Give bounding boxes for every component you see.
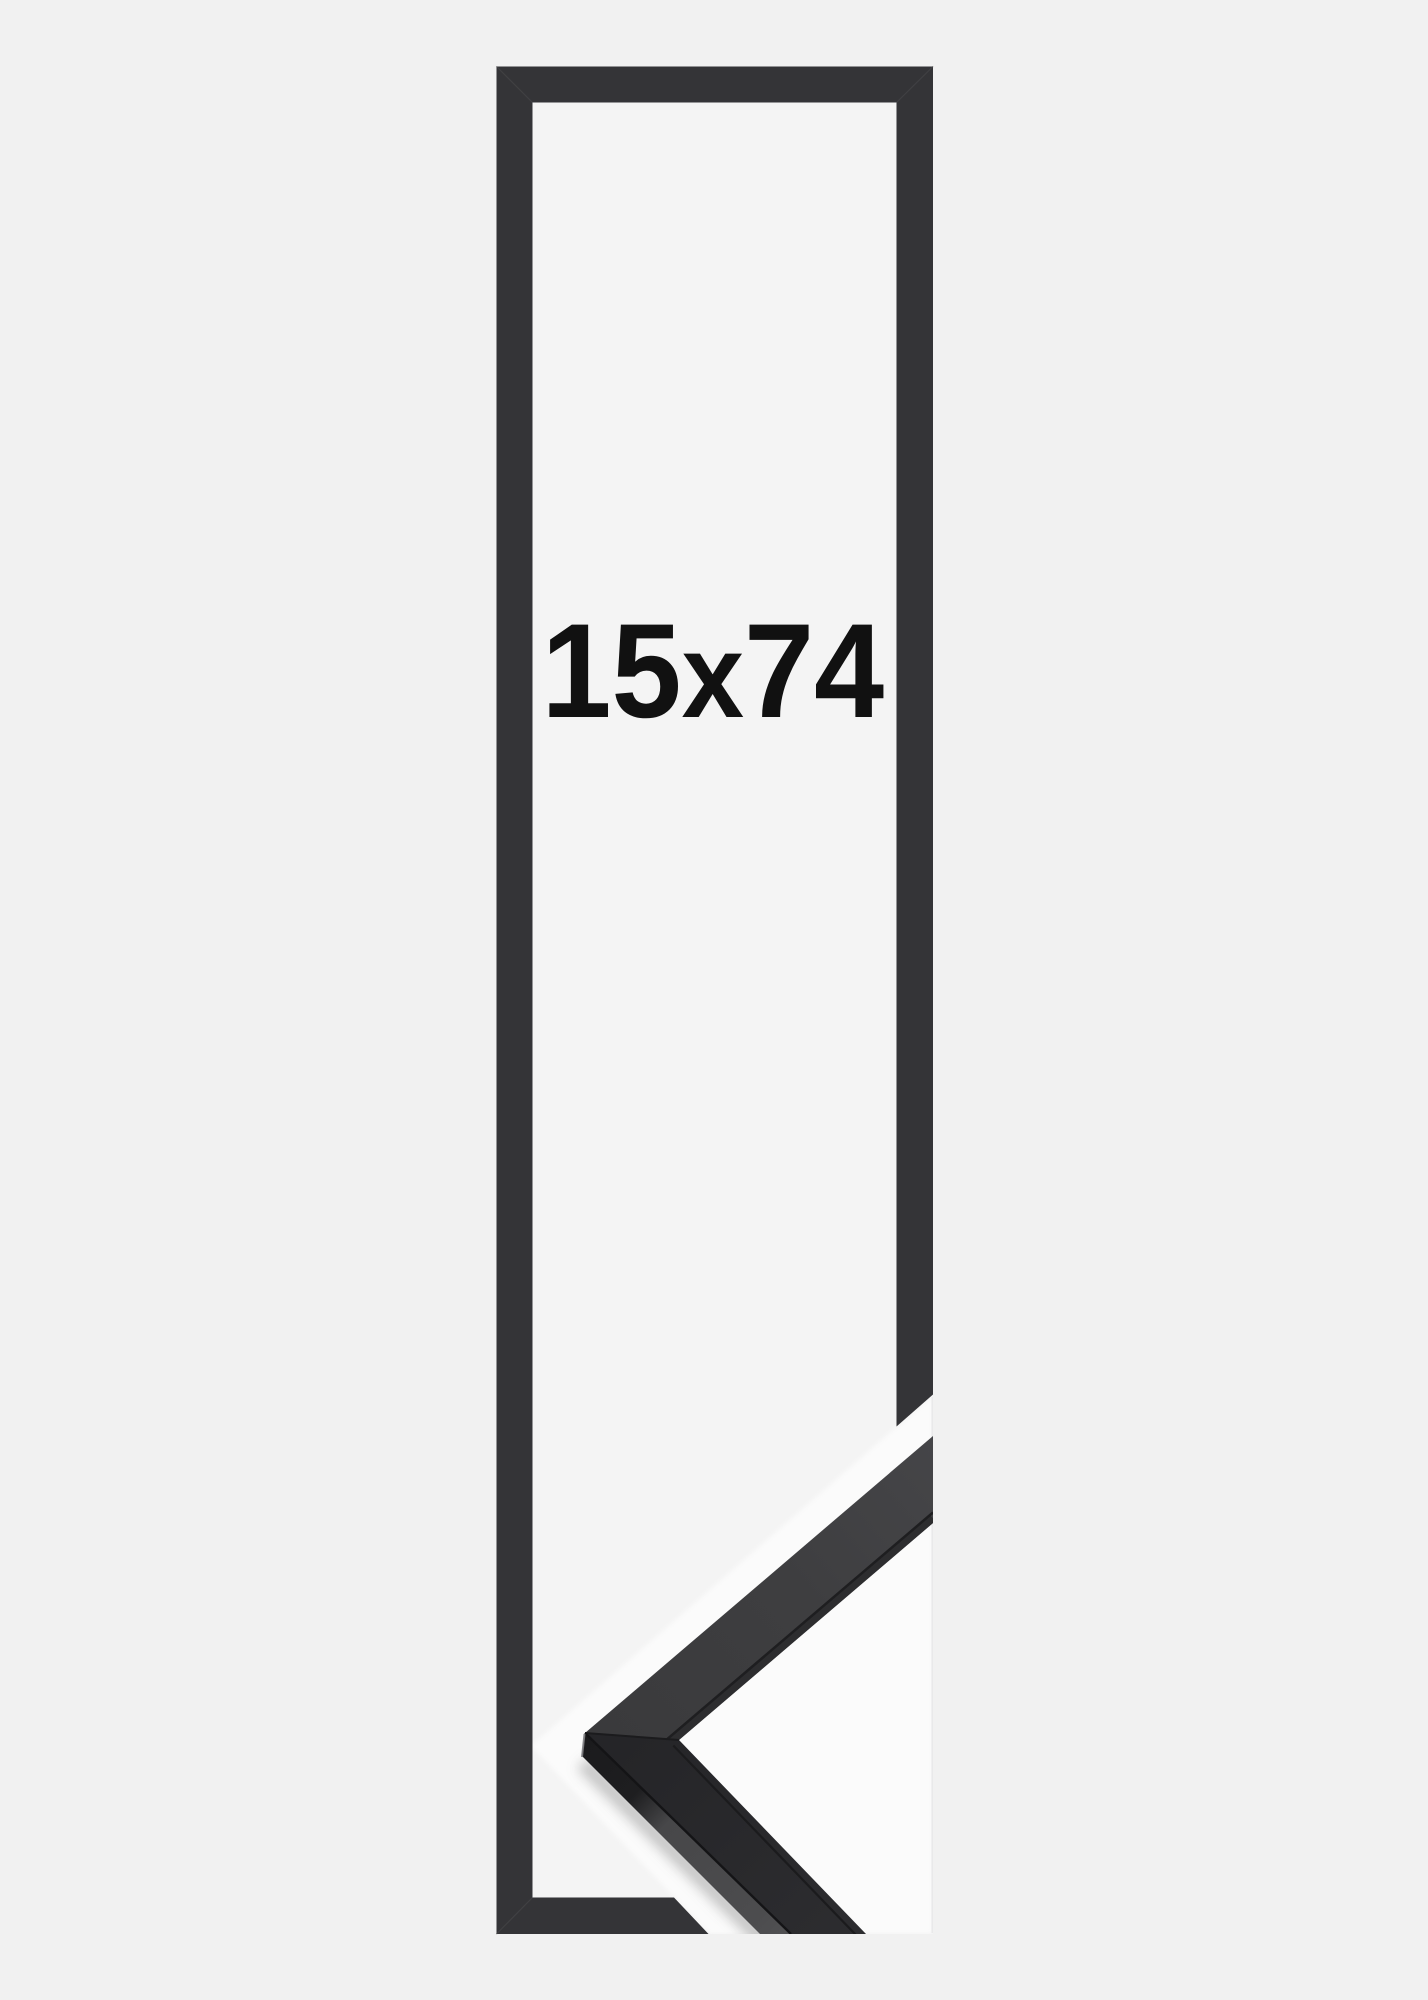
svg-text:15x74: 15x74 — [541, 595, 884, 746]
